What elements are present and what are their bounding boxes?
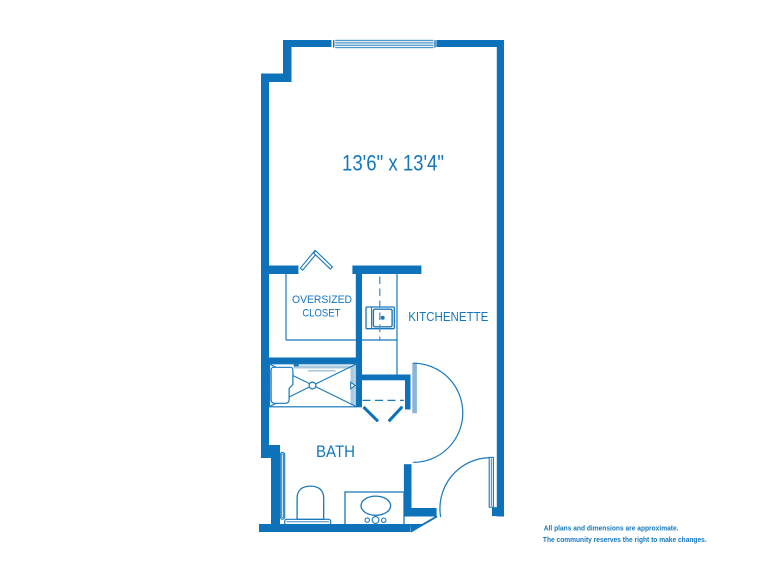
- svg-text:BATH: BATH: [316, 443, 355, 461]
- svg-text:13'6" x 13'4": 13'6" x 13'4": [342, 151, 444, 176]
- svg-text:The community reserves the rig: The community reserves the right to make…: [543, 535, 707, 544]
- svg-text:OVERSIZED: OVERSIZED: [292, 294, 352, 306]
- svg-text:KITCHENETTE: KITCHENETTE: [408, 309, 488, 324]
- svg-text:All plans and dimensions are a: All plans and dimensions are approximate…: [544, 524, 679, 533]
- svg-text:CLOSET: CLOSET: [302, 307, 340, 319]
